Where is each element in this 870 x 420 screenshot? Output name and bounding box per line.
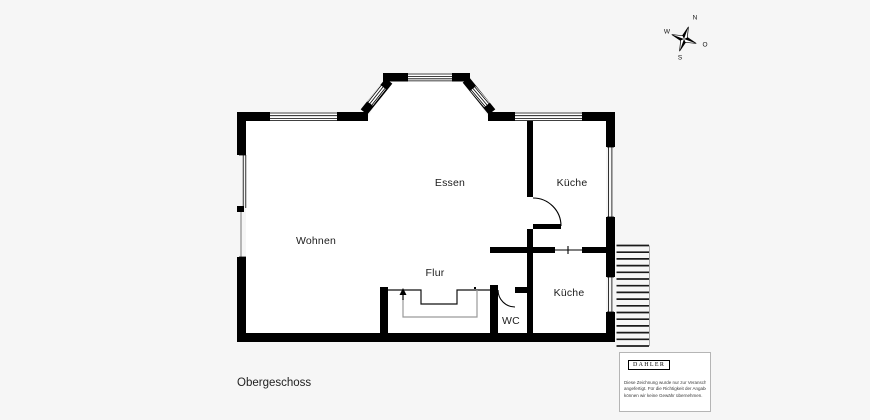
room-label-kueche-unten: Küche: [554, 287, 585, 299]
compass-west-label: W: [664, 29, 670, 36]
room-label-essen: Essen: [435, 177, 465, 189]
disclaimer-text: Diese Zeichnung wurde nur zur Veranschau…: [624, 380, 706, 399]
room-label-wc: WC: [502, 315, 520, 327]
legend-box: DAHLER Diese Zeichnung wurde nur zur Ver…: [619, 352, 711, 412]
disclaimer-line: angefertigt. Für die Richtigkeit der Ang…: [624, 386, 706, 392]
brand-logo: DAHLER: [628, 360, 670, 370]
exterior-stairs: [617, 246, 650, 347]
compass-east-label: O: [702, 42, 707, 49]
room-label-flur: Flur: [426, 267, 445, 279]
compass-north-label: N: [693, 15, 698, 22]
floorplan-page: Wohnen Essen Küche Flur WC Küche N O S W…: [0, 0, 870, 420]
floorplan-drawing: [0, 0, 870, 420]
compass-rose-icon: [667, 22, 700, 55]
floor-title: Obergeschoss: [237, 377, 311, 389]
disclaimer-line: können wir keine Gewähr übernehmen.: [624, 393, 706, 399]
compass-south-label: S: [678, 55, 682, 62]
room-label-wohnen: Wohnen: [296, 235, 336, 247]
room-label-kueche-oben: Küche: [557, 177, 588, 189]
